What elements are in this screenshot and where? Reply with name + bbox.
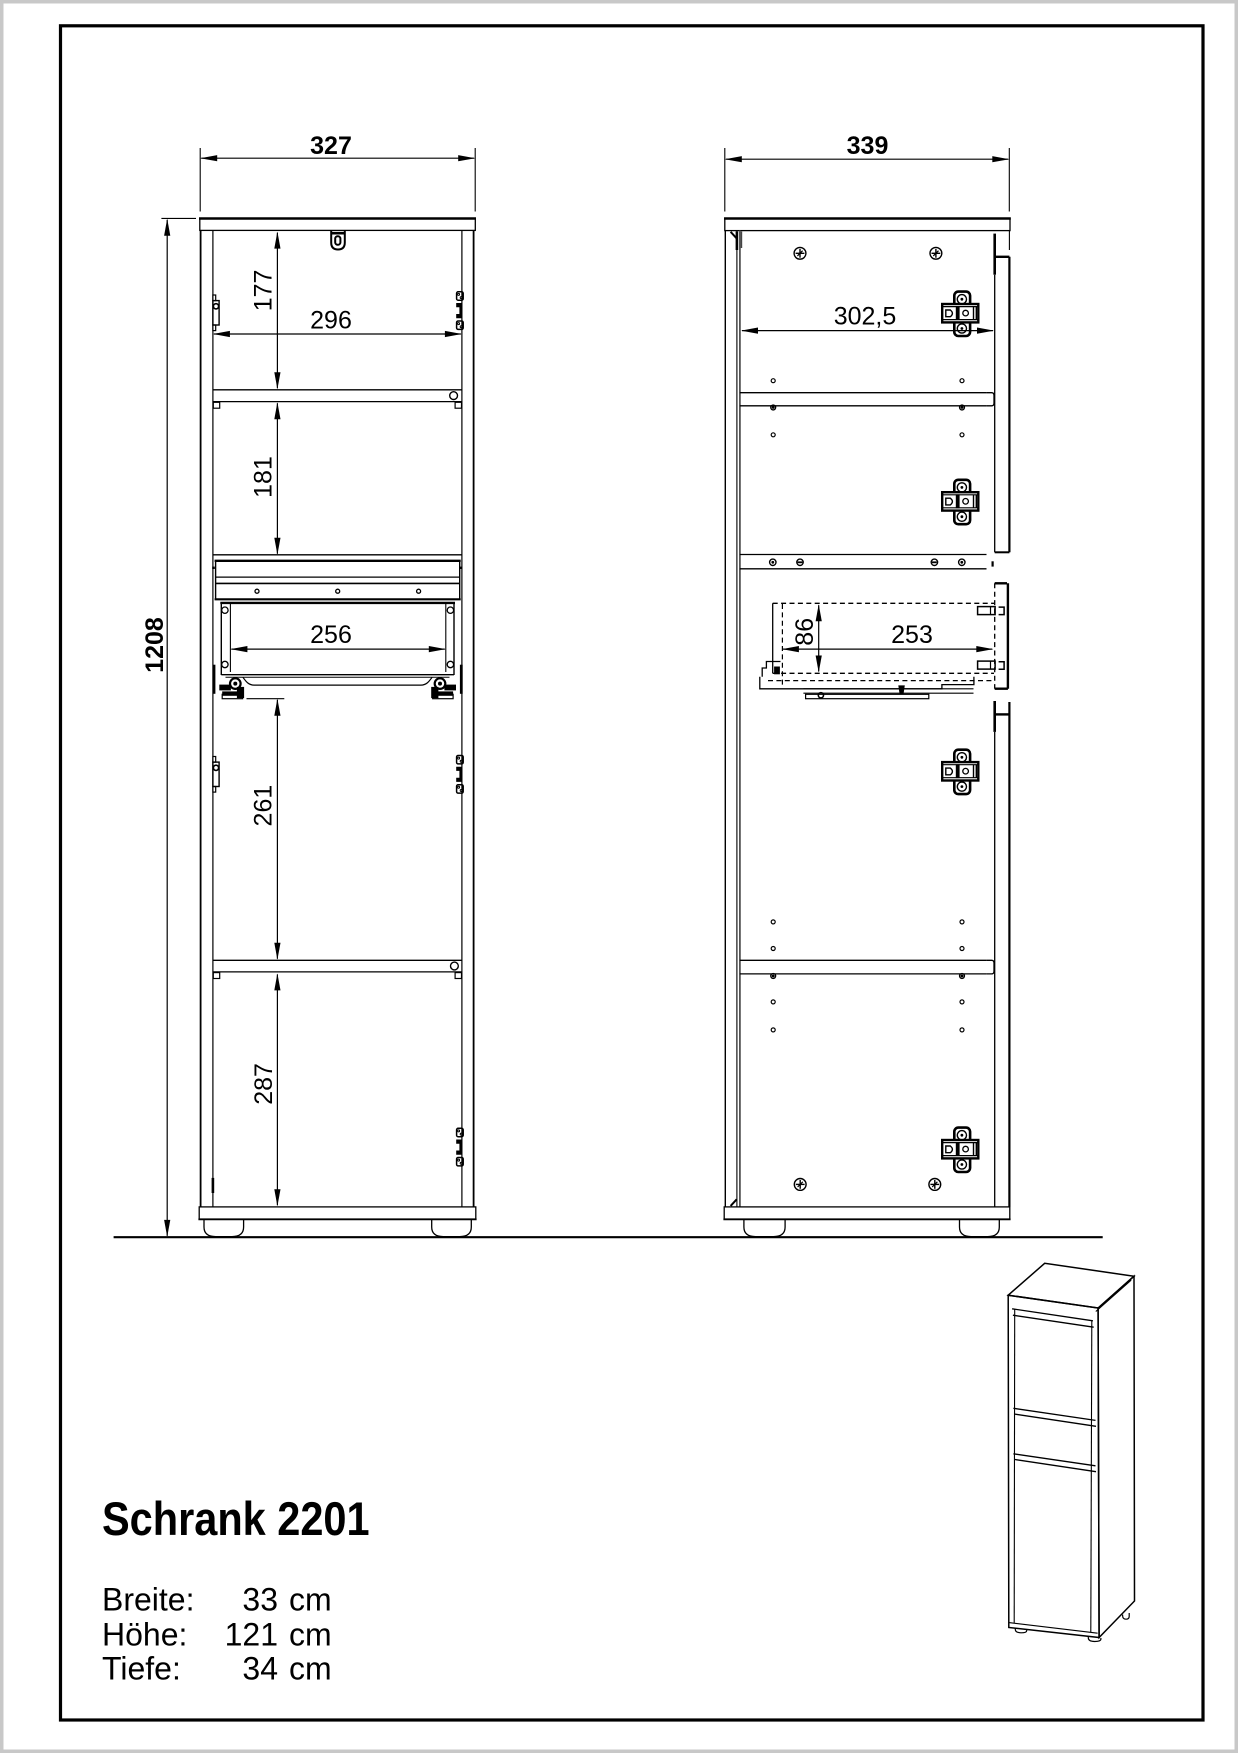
- svg-text:1208: 1208: [141, 617, 169, 673]
- svg-text:cm: cm: [289, 1582, 332, 1618]
- svg-text:327: 327: [310, 132, 352, 160]
- svg-text:253: 253: [891, 621, 933, 649]
- svg-text:287: 287: [250, 1063, 278, 1105]
- svg-text:cm: cm: [289, 1650, 332, 1686]
- svg-text:339: 339: [847, 132, 889, 160]
- svg-text:181: 181: [250, 456, 278, 498]
- svg-text:Breite:: Breite:: [102, 1582, 194, 1618]
- svg-text:34: 34: [242, 1650, 278, 1686]
- svg-text:cm: cm: [289, 1616, 332, 1652]
- svg-text:256: 256: [310, 621, 352, 649]
- svg-text:33: 33: [242, 1582, 278, 1618]
- svg-text:86: 86: [791, 618, 819, 646]
- svg-text:Höhe:: Höhe:: [102, 1616, 187, 1652]
- svg-text:296: 296: [310, 307, 352, 335]
- svg-text:302,5: 302,5: [834, 303, 897, 331]
- svg-text:261: 261: [250, 785, 278, 827]
- svg-text:Tiefe:: Tiefe:: [102, 1650, 181, 1686]
- svg-text:177: 177: [250, 270, 278, 312]
- svg-text:Schrank 2201: Schrank 2201: [102, 1494, 370, 1546]
- svg-text:121: 121: [225, 1616, 278, 1652]
